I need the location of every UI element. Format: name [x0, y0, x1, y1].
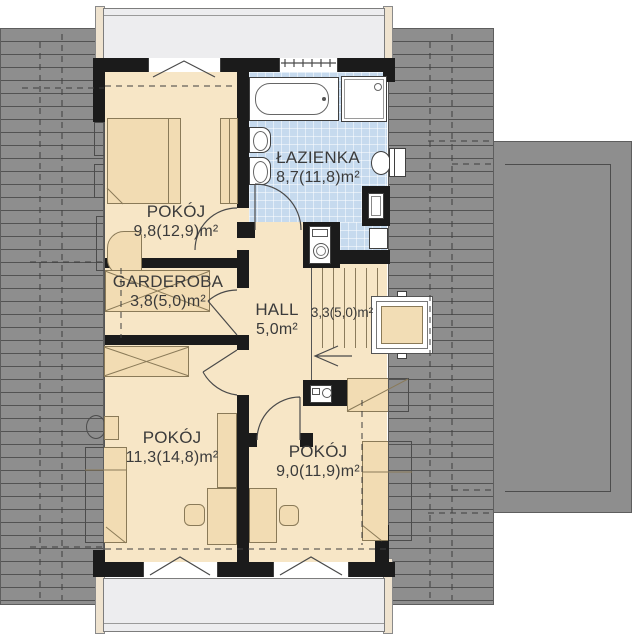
- wall: [338, 58, 395, 72]
- wall-center: [237, 250, 249, 288]
- desk-icon: [249, 488, 277, 543]
- bathtub-basin-icon: [255, 83, 329, 115]
- wardrobe-icon: [104, 346, 189, 377]
- bathtub-drain-icon: [322, 97, 326, 101]
- window-bedroom3: [273, 562, 349, 577]
- room-area: 5,0m²: [217, 320, 337, 340]
- toilet-cistern-line: [394, 149, 395, 176]
- shower-drain-icon: [374, 83, 382, 91]
- room-name: ŁAZIENKA: [248, 148, 388, 168]
- bathroom-cabinet-icon: [369, 228, 388, 249]
- room-area: 9,0(11,9)m²: [248, 462, 388, 482]
- roof-flat-inner-edge: [505, 164, 611, 492]
- wall: [349, 562, 395, 577]
- sink-unit-tray: [312, 388, 320, 395]
- room-label-bathroom: ŁAZIENKA 8,7(11,8)m²: [248, 148, 388, 188]
- dormer-bottom-ridge-line: [104, 623, 384, 624]
- wall: [218, 562, 273, 577]
- room-label-bedroom3: POKÓJ 9,0(11,9)m²: [248, 442, 388, 482]
- room-area: 8,7(11,8)m²: [248, 168, 388, 188]
- room-name: POKÓJ: [248, 442, 388, 462]
- window-bathroom: [279, 58, 338, 72]
- floor-plan: POKÓJ 9,8(12,9)m² ŁAZIENKA 8,7(11,8)m² G…: [0, 0, 634, 639]
- bed-blanket-line: [168, 118, 169, 204]
- window-bedroom1: [148, 58, 221, 72]
- bed-icon: [107, 118, 181, 204]
- sink-unit-bowl-icon: [322, 388, 332, 398]
- wall: [93, 58, 148, 72]
- washer-drum-inner: [316, 246, 326, 256]
- wall: [93, 72, 105, 122]
- room-name: POKÓJ: [106, 202, 246, 222]
- wall-bathroom: [338, 250, 390, 264]
- room-name: GARDEROBA: [98, 272, 238, 292]
- skylight-hinge: [397, 291, 407, 297]
- room-label-bedroom1: POKÓJ 9,8(12,9)m²: [106, 202, 246, 242]
- chimney-shaft-inner: [371, 196, 381, 216]
- window-bedroom2: [143, 562, 218, 577]
- wardrobe-divider: [229, 118, 230, 204]
- room-name: POKÓJ: [102, 428, 242, 448]
- wall: [93, 562, 143, 577]
- washer-drawer-icon: [312, 229, 328, 237]
- wall: [221, 58, 279, 72]
- cabinet-icon: [207, 488, 237, 545]
- door-threshold: [237, 350, 249, 395]
- chair-icon: [279, 505, 299, 526]
- bathroom-door-threshold: [255, 222, 303, 238]
- room-label-bedroom2: POKÓJ 11,3(14,8)m²: [102, 428, 242, 468]
- wardrobe-icon: [347, 378, 388, 412]
- skylight-hinge: [397, 353, 407, 359]
- room-label-stairs: 3,3(5,0)m²: [292, 305, 392, 320]
- room-area: 3,3(5,0)m²: [292, 305, 392, 320]
- room-area: 9,8(12,9)m²: [106, 222, 246, 242]
- room-area: 11,3(14,8)m²: [102, 448, 242, 468]
- dormer-top-ridge-line: [104, 15, 384, 16]
- toilet-cistern-icon: [389, 148, 406, 177]
- chair-icon: [184, 504, 205, 526]
